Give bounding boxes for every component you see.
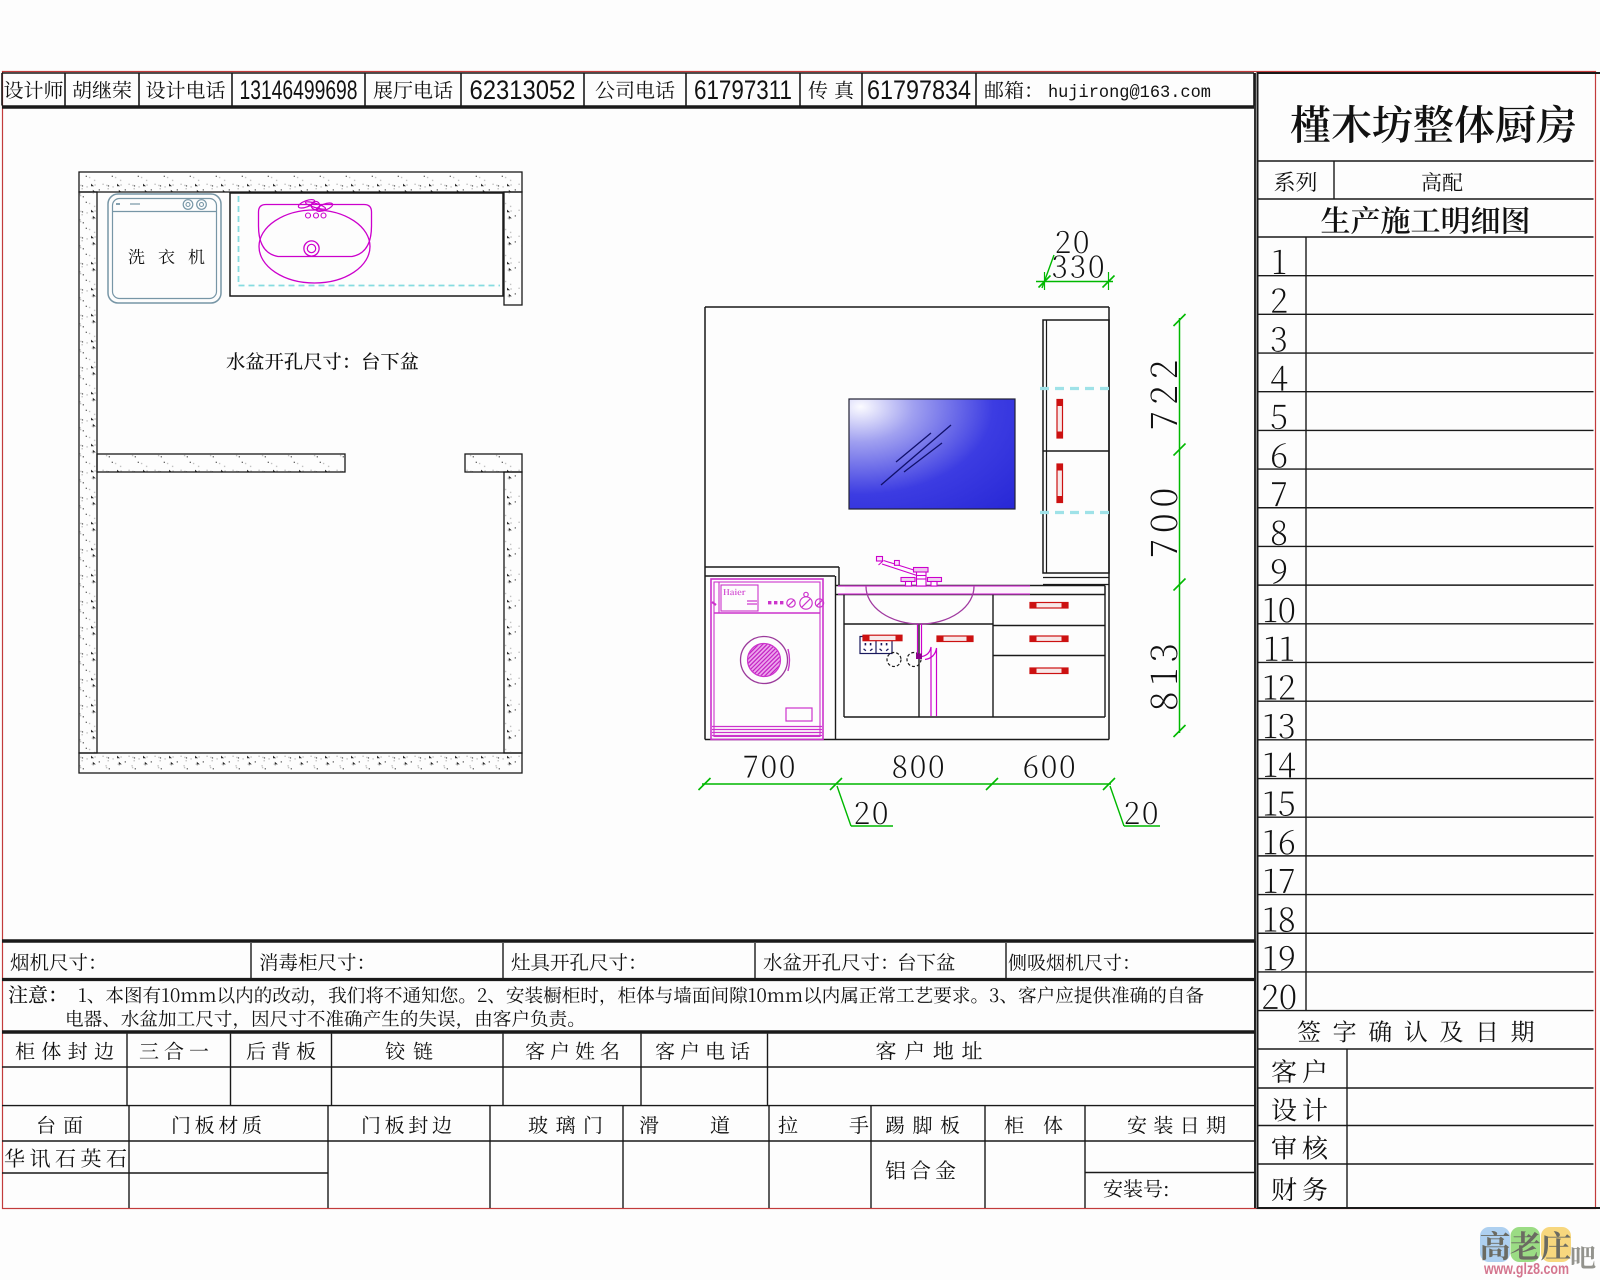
svg-text:61797834: 61797834 [867, 75, 971, 105]
svg-text:hujirong@163.com: hujirong@163.com [1048, 83, 1211, 103]
svg-text:www.glz8.com: www.glz8.com [1483, 1261, 1569, 1278]
svg-text:62313052: 62313052 [470, 75, 576, 105]
svg-text:13146499698: 13146499698 [240, 75, 358, 105]
svg-text:61797311: 61797311 [694, 75, 792, 105]
